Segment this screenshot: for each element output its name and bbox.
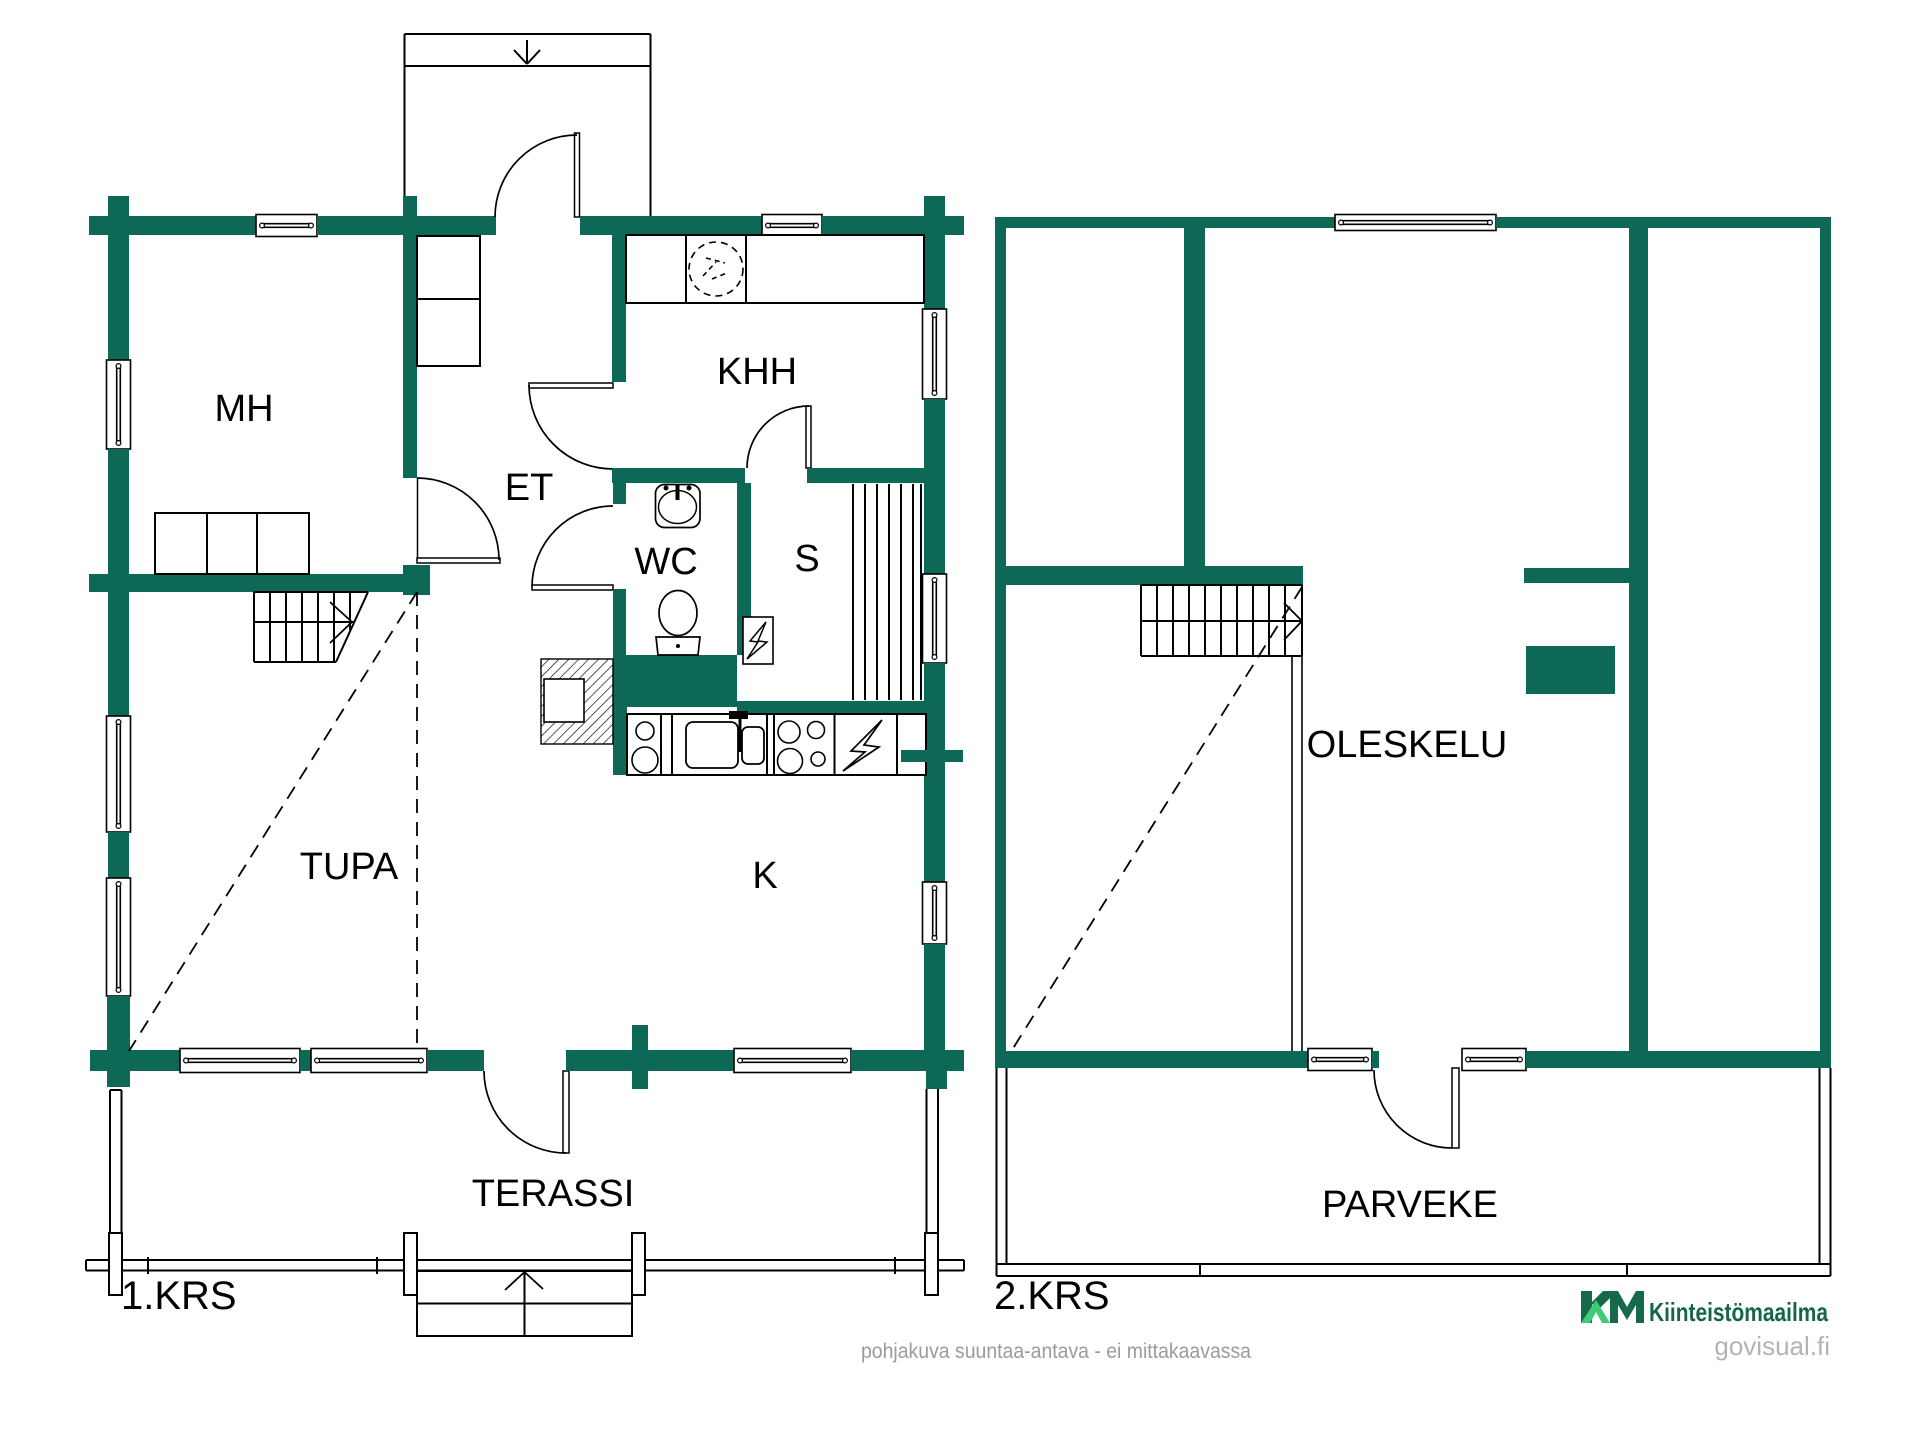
svg-text:TUPA: TUPA — [300, 846, 399, 888]
svg-text:govisual.fi: govisual.fi — [1714, 1331, 1830, 1361]
svg-text:PARVEKE: PARVEKE — [1322, 1184, 1498, 1226]
svg-text:KHH: KHH — [717, 351, 797, 393]
svg-text:Kiinteistömaailma: Kiinteistömaailma — [1649, 1297, 1828, 1327]
svg-text:MH: MH — [214, 388, 273, 430]
svg-text:1.KRS: 1.KRS — [121, 1274, 237, 1318]
svg-text:WC: WC — [634, 541, 697, 583]
svg-text:K: K — [752, 855, 777, 897]
svg-text:ET: ET — [505, 467, 554, 509]
svg-text:pohjakuva suuntaa-antava - ei: pohjakuva suuntaa-antava - ei mittakaava… — [861, 1340, 1251, 1363]
svg-text:OLESKELU: OLESKELU — [1307, 724, 1508, 766]
svg-text:TERASSI: TERASSI — [472, 1173, 635, 1215]
svg-text:S: S — [794, 538, 819, 580]
svg-text:2.KRS: 2.KRS — [994, 1274, 1110, 1318]
